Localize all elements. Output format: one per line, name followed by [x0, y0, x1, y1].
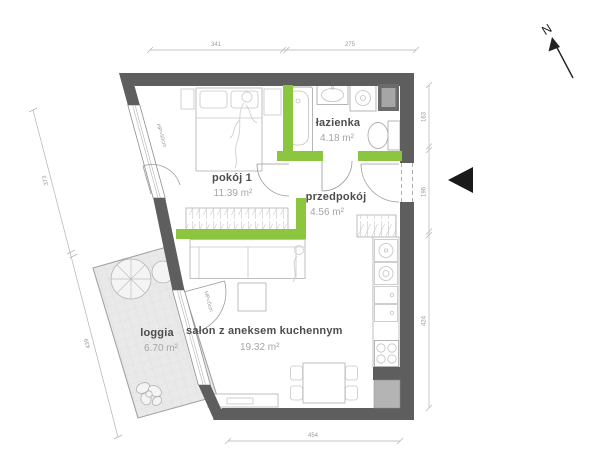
chair — [291, 386, 303, 400]
dim-left-1: 439 — [84, 337, 93, 349]
toilet-tank — [388, 121, 400, 150]
dim-right-1: 196 — [422, 186, 428, 197]
chair — [291, 366, 303, 380]
dim-right-2: 424 — [422, 315, 428, 326]
window-hp-label-salon: HP=0cm — [202, 291, 214, 313]
dim-left-0: 373 — [42, 174, 51, 186]
furniture-pokoj — [181, 88, 288, 230]
room-label-lazienka: łazienka — [316, 117, 361, 129]
stove-hob — [375, 341, 399, 367]
dining-table — [303, 363, 345, 403]
room-label-salon: salon z aneksem kuchennym — [186, 325, 343, 337]
nightstand — [264, 89, 281, 115]
furniture-salon — [190, 240, 358, 408]
toilet — [368, 123, 388, 149]
kitchen-units — [373, 237, 399, 367]
room-area-loggia: 6.70 m² — [144, 343, 179, 354]
north-label: N — [539, 21, 554, 38]
room-label-loggia: loggia — [140, 327, 174, 339]
shaft — [374, 380, 400, 408]
door-lazienka — [322, 161, 352, 191]
room-area-przedpokoj: 4.56 m² — [310, 207, 345, 218]
sofa — [190, 240, 305, 279]
dimension-bottom: 454 — [225, 433, 403, 444]
room-area-lazienka: 4.18 m² — [320, 133, 355, 144]
entrance-triangle-icon — [448, 167, 473, 193]
room-label-pokoj1: pokój 1 — [212, 172, 252, 184]
door-entrance — [361, 164, 399, 202]
dimension-top: 341 275 — [147, 42, 419, 53]
window-pokoj — [128, 105, 165, 198]
dim-top-1: 275 — [345, 42, 356, 48]
bed — [196, 88, 262, 171]
washing-machine — [350, 85, 376, 111]
room-area-pokoj1: 11.39 m² — [214, 188, 253, 199]
room-label-przedpokoj: przedpokój — [306, 191, 367, 203]
dim-right-0: 163 — [422, 111, 428, 122]
window-hp-label-pokoj: HP=50cm — [155, 123, 168, 148]
north-arrow-icon: N — [539, 21, 573, 78]
furniture-przedpokoj — [357, 215, 396, 237]
chair — [346, 386, 358, 400]
coffee-table — [238, 283, 266, 311]
floorplan-image: 341 275 163 196 424 454 373 439 HP=50cm … — [0, 0, 600, 475]
dim-bottom-0: 454 — [308, 433, 319, 439]
dimension-right: 163 196 424 — [422, 82, 433, 411]
room-area-salon: 19.32 m² — [240, 342, 280, 353]
dim-top-0: 341 — [211, 42, 222, 48]
entrance-opening — [402, 163, 413, 202]
nightstand — [181, 89, 194, 109]
chair — [346, 366, 358, 380]
